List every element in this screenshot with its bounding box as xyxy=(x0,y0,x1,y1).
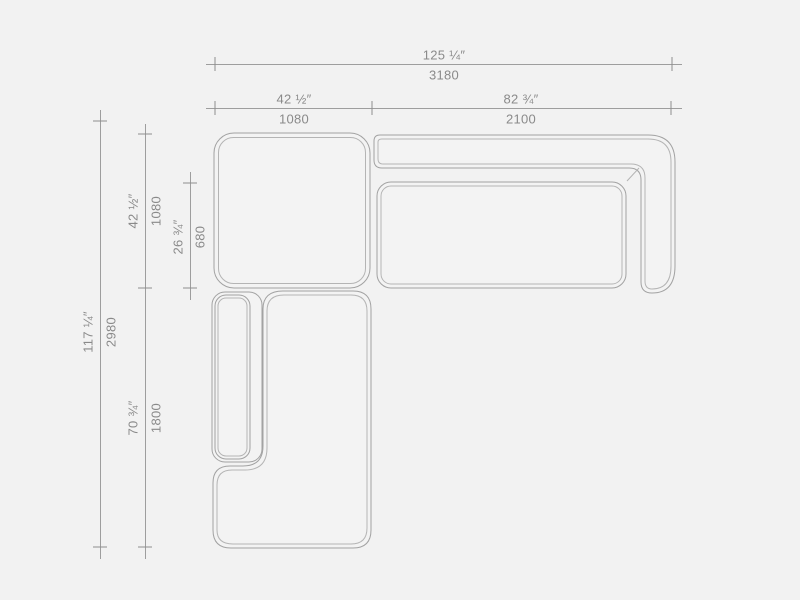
ottoman-outer-outline xyxy=(214,133,370,288)
dim-left-module-width-inches: 42 ½″ xyxy=(276,92,311,107)
dim-module-widths-line xyxy=(206,108,682,109)
dim-tick xyxy=(138,134,152,135)
right-sofa xyxy=(374,135,675,293)
dim-seat-depth-mm: 680 xyxy=(193,226,208,249)
drawing-canvas: 125 ¼″ 3180 42 ½″ 1080 82 ¾″ 2100 117 ¼″… xyxy=(0,0,800,600)
dim-tick xyxy=(93,121,107,122)
dim-tick xyxy=(183,183,197,184)
dim-overall-depth-mm: 2980 xyxy=(104,317,119,347)
dim-overall-width-mm: 3180 xyxy=(429,68,459,83)
dim-tick xyxy=(138,547,152,548)
dim-tick xyxy=(671,101,672,115)
dim-left-module-width-mm: 1080 xyxy=(279,112,309,127)
dim-left-module-depth-mm: 1080 xyxy=(149,196,164,226)
backrest-arm-miter-line xyxy=(627,168,639,181)
dim-chaise-length-mm: 1800 xyxy=(149,403,164,433)
dim-overall-width-line xyxy=(206,64,682,65)
dim-overall-depth-inches: 117 ¼″ xyxy=(81,311,96,353)
dim-right-module-width-mm: 2100 xyxy=(506,112,536,127)
dim-tick xyxy=(138,288,152,289)
chaise-arm-pad-outline xyxy=(215,295,250,459)
dim-tick xyxy=(672,57,673,71)
ottoman-module xyxy=(214,133,370,288)
dim-module-depths-line xyxy=(145,124,146,559)
sofa-plan-drawing xyxy=(0,0,800,600)
dim-tick xyxy=(215,57,216,71)
dim-overall-width-inches: 125 ¼″ xyxy=(423,48,466,63)
dim-tick xyxy=(215,101,216,115)
dim-seat-depth-line xyxy=(190,172,191,300)
dim-right-module-width-inches: 82 ¾″ xyxy=(503,92,538,107)
dim-seat-depth-inches: 26 ¾″ xyxy=(171,219,186,254)
dim-left-module-depth-inches: 42 ½″ xyxy=(126,193,141,228)
sofa-seat-outer-outline xyxy=(377,182,626,288)
dim-chaise-length-inches: 70 ¾″ xyxy=(126,400,141,435)
dim-tick xyxy=(183,288,197,289)
dim-tick xyxy=(372,101,373,115)
chaise-module xyxy=(212,291,371,548)
dim-overall-depth-line xyxy=(100,110,101,559)
dim-tick xyxy=(93,547,107,548)
